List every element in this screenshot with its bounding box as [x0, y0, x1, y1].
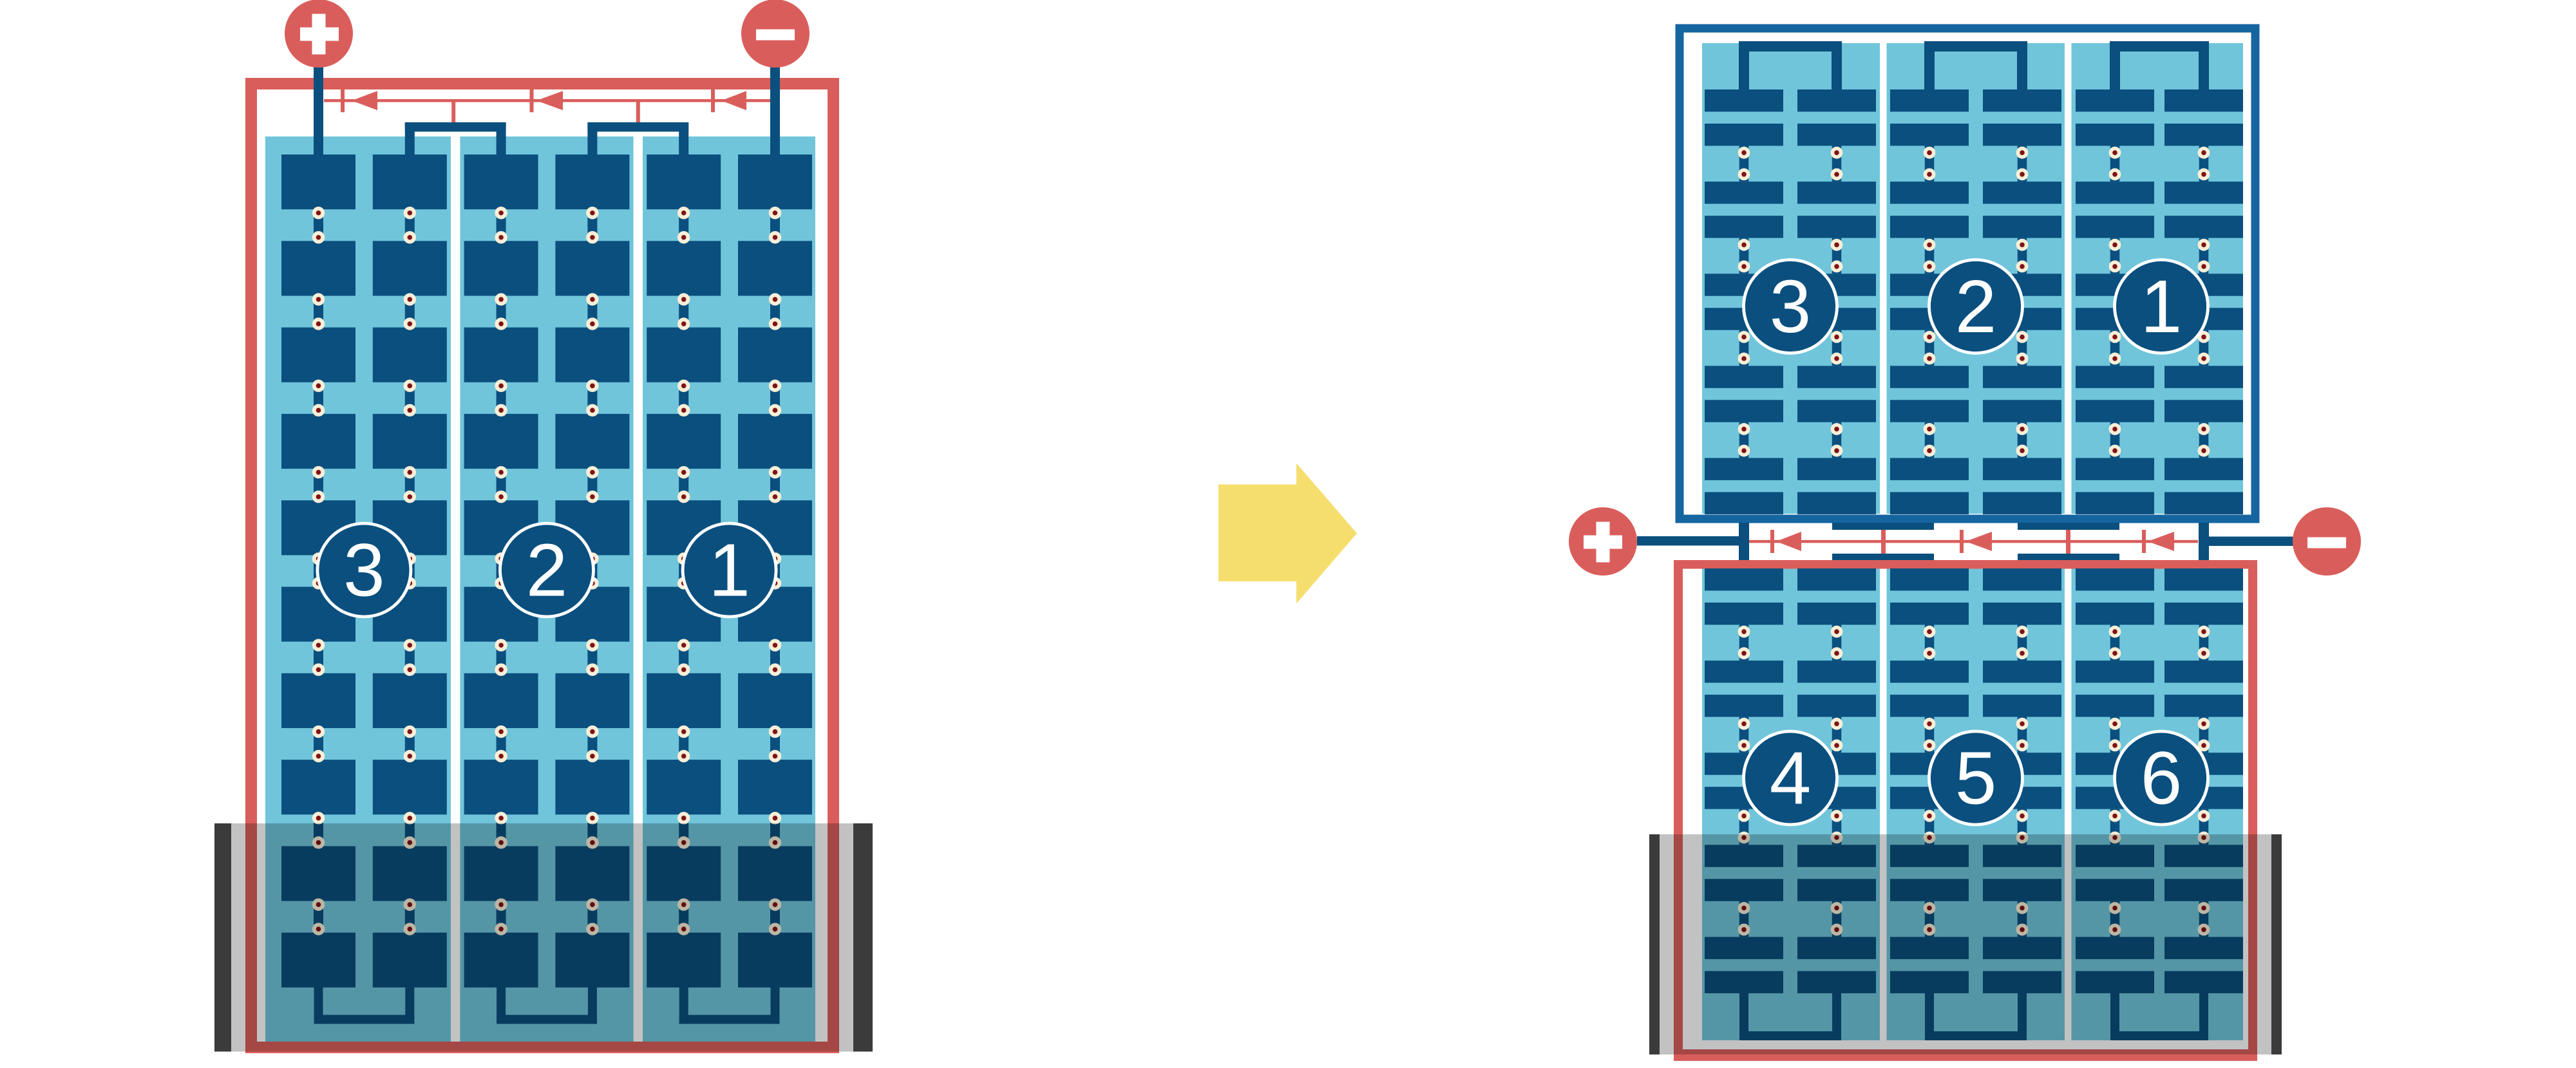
svg-text:4: 4 [1770, 736, 1812, 820]
svg-text:3: 3 [343, 529, 385, 612]
svg-text:3: 3 [1770, 265, 1812, 348]
svg-text:5: 5 [1955, 736, 1997, 820]
svg-text:2: 2 [1955, 265, 1997, 348]
svg-text:6: 6 [2141, 736, 2183, 820]
svg-text:2: 2 [526, 529, 568, 612]
svg-text:1: 1 [2141, 265, 2183, 348]
svg-text:1: 1 [708, 529, 750, 612]
